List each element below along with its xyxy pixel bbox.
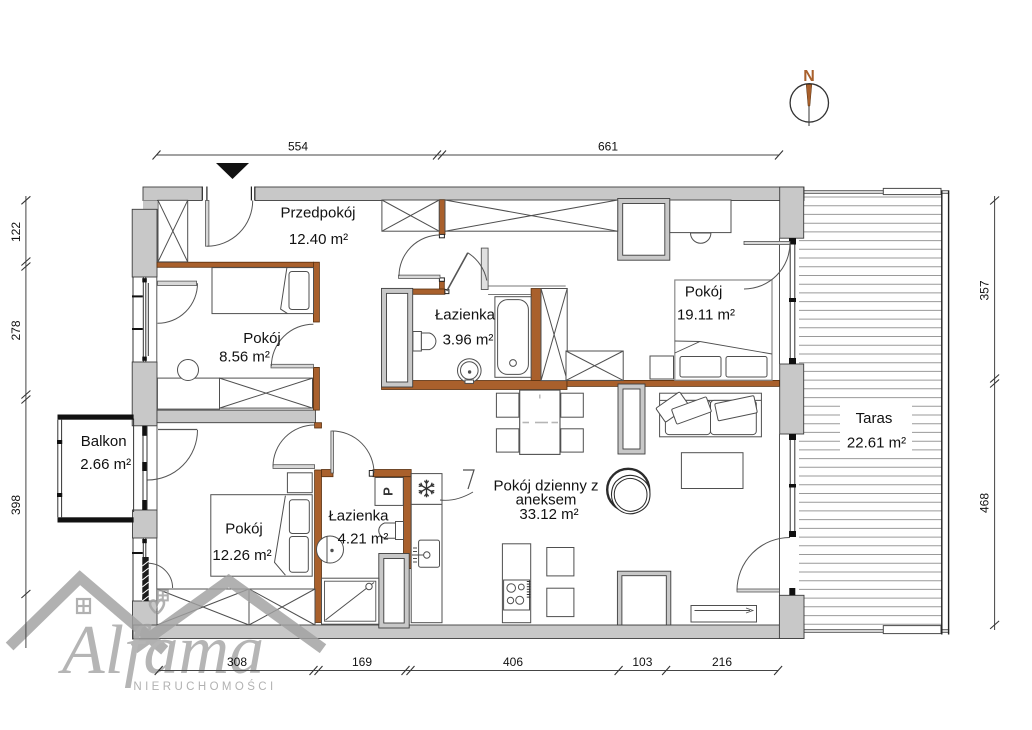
svg-text:N: N: [803, 68, 815, 85]
svg-text:Łazienka: Łazienka: [435, 307, 496, 324]
svg-text:278: 278: [9, 320, 23, 340]
svg-text:Alfama: Alfama: [58, 612, 264, 689]
svg-text:308: 308: [227, 655, 247, 669]
svg-text:Balkon: Balkon: [81, 433, 127, 450]
svg-text:122: 122: [9, 222, 23, 242]
svg-text:8.56 m²: 8.56 m²: [219, 349, 270, 366]
svg-text:103: 103: [632, 655, 652, 669]
svg-text:Pokój: Pokój: [685, 284, 723, 301]
svg-text:406: 406: [503, 655, 523, 669]
svg-text:2.66 m²: 2.66 m²: [80, 456, 131, 473]
svg-text:661: 661: [598, 140, 618, 154]
svg-text:3.96 m²: 3.96 m²: [443, 331, 494, 348]
svg-text:Przedpokój: Przedpokój: [280, 205, 355, 222]
svg-text:216: 216: [712, 655, 732, 669]
svg-text:33.12 m²: 33.12 m²: [519, 506, 578, 523]
svg-text:169: 169: [352, 655, 372, 669]
svg-text:468: 468: [978, 493, 992, 513]
svg-text:P: P: [380, 487, 395, 496]
svg-text:Pokój: Pokój: [243, 330, 281, 347]
svg-text:4.21 m²: 4.21 m²: [338, 531, 389, 548]
svg-text:398: 398: [9, 495, 23, 515]
svg-text:NIERUCHOMOŚCI: NIERUCHOMOŚCI: [133, 680, 276, 693]
svg-text:Pokój: Pokój: [225, 520, 263, 537]
svg-text:12.26 m²: 12.26 m²: [212, 547, 271, 564]
svg-text:554: 554: [288, 140, 308, 154]
svg-text:22.61 m²: 22.61 m²: [847, 435, 906, 452]
svg-text:Taras: Taras: [856, 410, 893, 427]
svg-text:357: 357: [978, 280, 992, 300]
svg-text:Łazienka: Łazienka: [328, 507, 389, 524]
svg-text:19.11 m²: 19.11 m²: [677, 307, 735, 324]
svg-text:12.40 m²: 12.40 m²: [289, 231, 348, 248]
